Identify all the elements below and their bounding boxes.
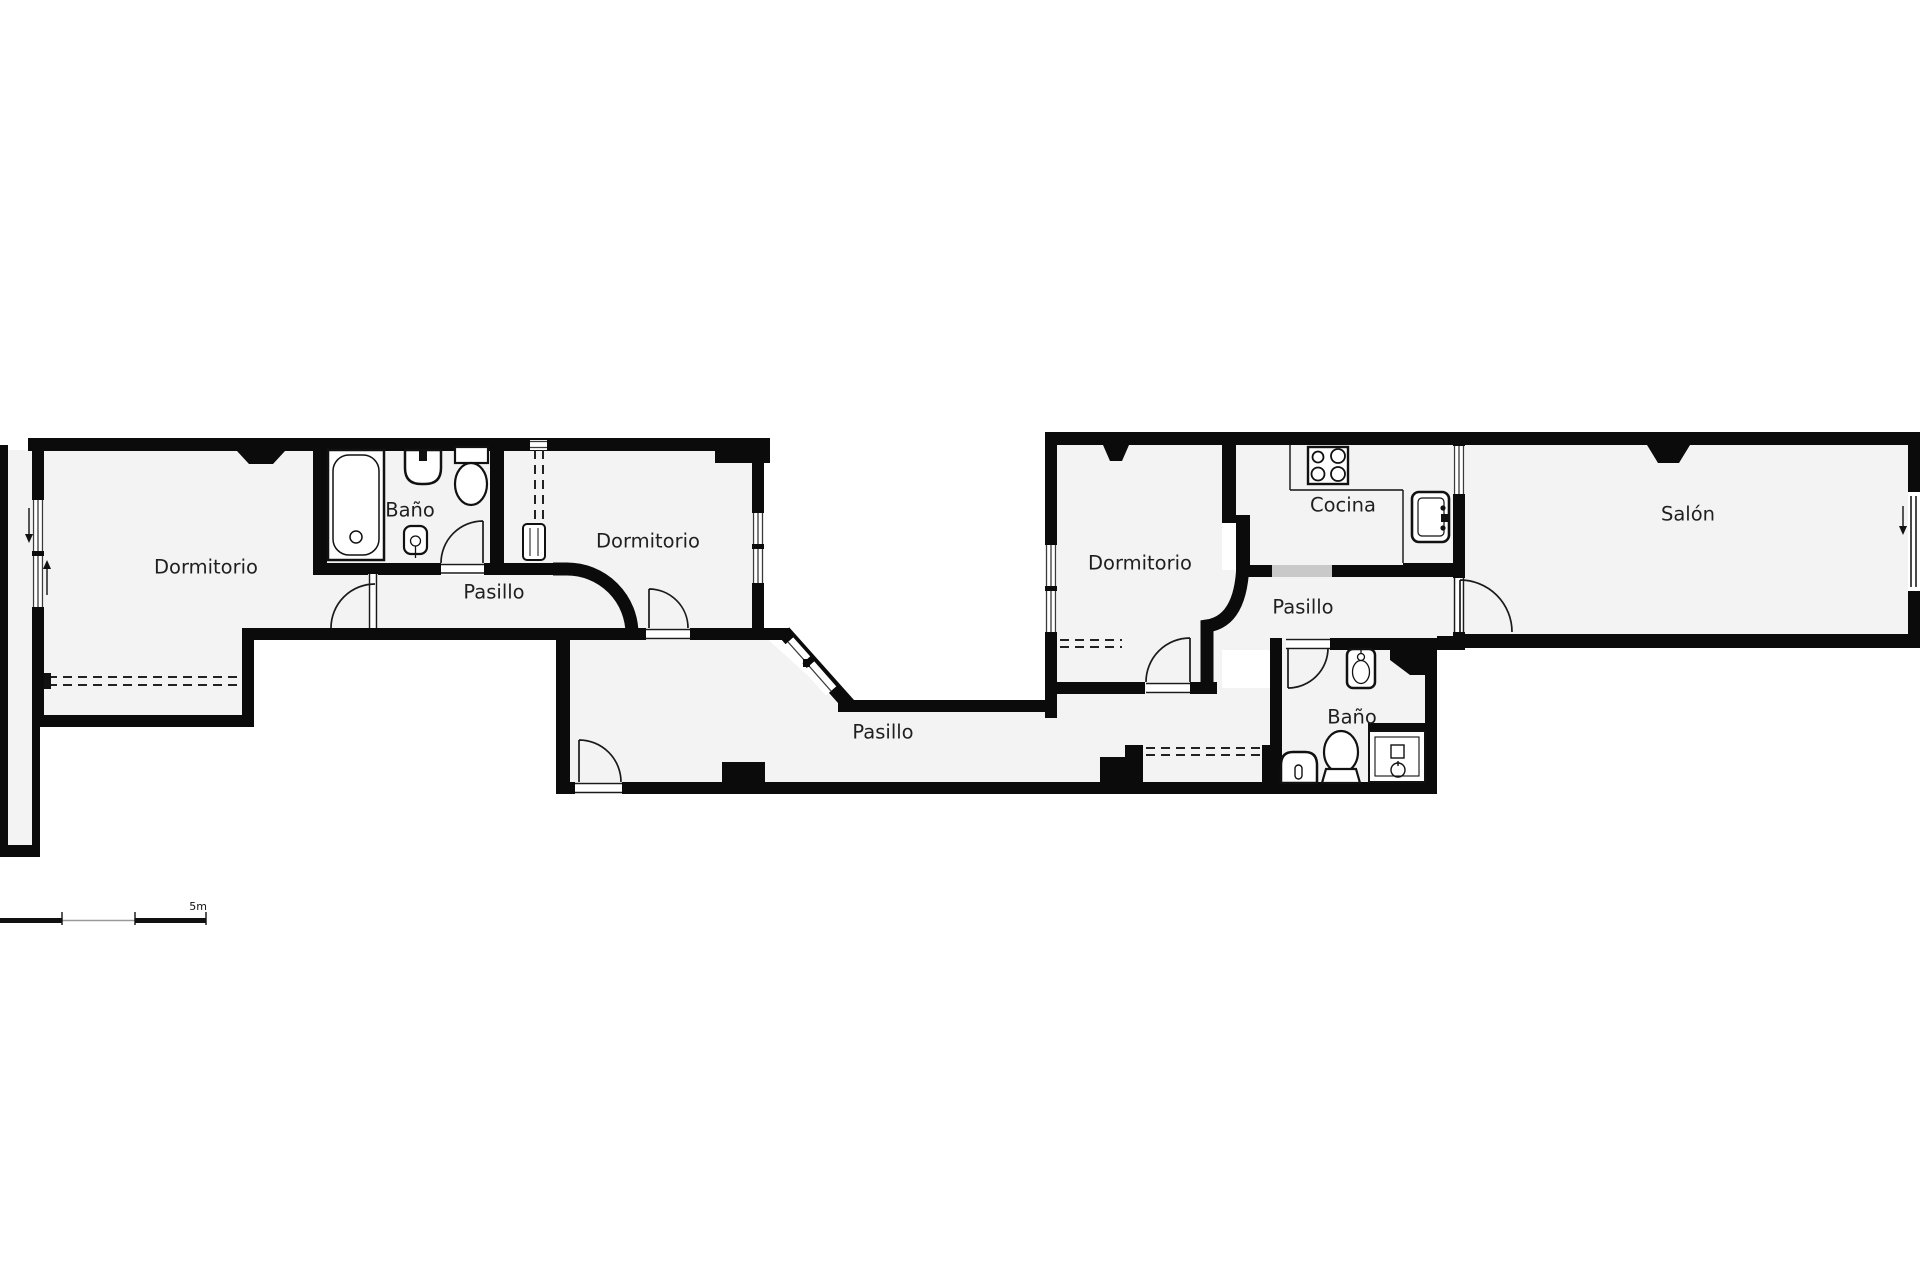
toilet-2-icon bbox=[1322, 731, 1360, 783]
label-salon: Salón bbox=[1661, 503, 1715, 526]
label-dormitorio-derecha: Dormitorio bbox=[1088, 552, 1192, 575]
window-divider bbox=[32, 551, 44, 556]
washbasin-icon bbox=[405, 450, 441, 484]
window-divider bbox=[752, 544, 764, 549]
radiator-icon bbox=[523, 524, 545, 560]
floorplan-svg: Dormitorio Baño Pasillo Dormitorio Pasil… bbox=[0, 0, 1920, 1280]
window-top-small bbox=[530, 440, 547, 450]
shower-icon bbox=[1369, 731, 1425, 782]
window-dormitorio-3-left bbox=[1045, 545, 1057, 632]
window-divider bbox=[1045, 586, 1057, 591]
window-dormitorio-left bbox=[32, 500, 44, 607]
window-salon-right bbox=[1908, 492, 1920, 591]
label-dormitorio-izquierda: Dormitorio bbox=[154, 556, 258, 579]
label-pasillo-central: Pasillo bbox=[852, 721, 913, 744]
washbasin-2-icon bbox=[1347, 649, 1375, 688]
toilet-icon bbox=[455, 447, 488, 505]
label-pasillo-izquierda: Pasillo bbox=[463, 581, 524, 604]
stove-icon bbox=[1308, 447, 1348, 484]
floorplan-page: Dormitorio Baño Pasillo Dormitorio Pasil… bbox=[0, 0, 1920, 1280]
bathtub-icon bbox=[328, 450, 384, 560]
window-gap bbox=[1908, 492, 1920, 591]
window-divider bbox=[803, 659, 810, 667]
open-passage-cocina bbox=[1272, 565, 1332, 577]
bidet-icon bbox=[404, 526, 427, 558]
label-dormitorio-centro: Dormitorio bbox=[596, 530, 700, 553]
label-bano-izquierda: Baño bbox=[385, 499, 435, 522]
window-dormitorio-2-right bbox=[752, 513, 764, 583]
kitchen-sink-icon bbox=[1412, 492, 1449, 542]
label-cocina: Cocina bbox=[1310, 494, 1376, 517]
scale-label: 5m bbox=[189, 900, 207, 913]
window-cocina-salon bbox=[1453, 446, 1465, 494]
label-pasillo-derecha: Pasillo bbox=[1272, 596, 1333, 619]
scale-bar: 5m bbox=[0, 900, 207, 925]
wardrobe-end-tick bbox=[44, 673, 51, 689]
label-bano-derecha: Baño bbox=[1327, 706, 1377, 729]
bidet-2-icon bbox=[1281, 752, 1317, 783]
